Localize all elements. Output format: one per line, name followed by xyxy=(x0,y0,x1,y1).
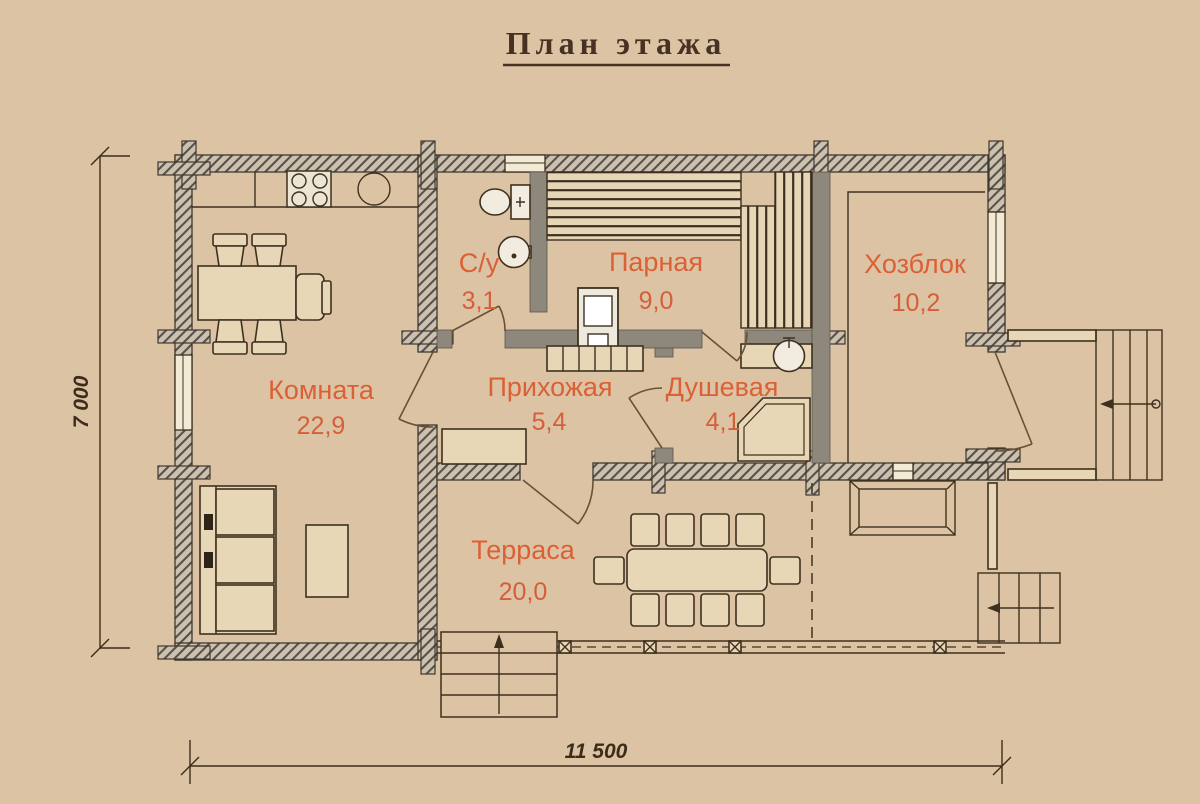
direction-arrow xyxy=(987,603,1054,613)
hallway-bench xyxy=(547,346,643,371)
room-area-bathroom: 3,1 xyxy=(462,287,497,315)
terrace-table-icon xyxy=(627,549,767,591)
coffee-table xyxy=(306,525,348,597)
floor-plan-page: План этажа xyxy=(0,0,1200,804)
dimension-label-width: 11 500 xyxy=(565,740,628,763)
room-area-shower: 4,1 xyxy=(706,408,741,436)
room-label-terrace: Терраса xyxy=(471,535,576,565)
floor-plan-drawing: План этажа xyxy=(0,0,1200,804)
window-terrace xyxy=(893,463,913,480)
dimension-vertical: 7 000 xyxy=(70,147,130,657)
room-area-utility: 10,2 xyxy=(892,289,941,317)
room-area-sauna: 9,0 xyxy=(639,287,674,315)
room-label-utility: Хозблок xyxy=(864,249,966,279)
window-right xyxy=(988,212,1005,283)
deck-rail-post xyxy=(988,483,997,569)
door-terrace xyxy=(523,480,593,524)
dining-table-icon xyxy=(198,266,296,320)
dimension-label-depth: 7 000 xyxy=(70,375,93,428)
terrace-steps xyxy=(441,632,557,717)
utility-room-lining xyxy=(848,192,985,463)
kitchen-sink-icon xyxy=(358,173,390,205)
room-label-hallway: Прихожая xyxy=(487,372,612,402)
page-title: План этажа xyxy=(506,25,726,61)
room-area-hallway: 5,4 xyxy=(532,408,567,436)
shower-cabin-icon xyxy=(738,398,810,461)
washbasin-icon xyxy=(499,237,532,268)
room-area-terrace: 20,0 xyxy=(499,578,548,606)
room-label-room: Комната xyxy=(268,375,375,405)
porch-steps xyxy=(1008,330,1162,480)
room-label-bathroom: С/у xyxy=(459,248,500,278)
door-room xyxy=(399,352,433,427)
wardrobe xyxy=(442,429,526,464)
stove-icon xyxy=(287,171,331,207)
room-label-shower: Душевая xyxy=(666,372,779,402)
side-steps xyxy=(978,573,1060,643)
room-area-room: 22,9 xyxy=(297,412,346,440)
floor-hatch xyxy=(850,481,955,535)
room-label-sauna: Парная xyxy=(609,247,703,277)
window-top xyxy=(505,155,545,172)
dimension-horizontal: 11 500 xyxy=(181,740,1011,784)
sofa-icon xyxy=(200,486,276,634)
toilet-icon xyxy=(480,185,530,219)
window-left xyxy=(175,355,192,430)
door-utility xyxy=(995,352,1032,451)
door-shower xyxy=(629,388,662,448)
